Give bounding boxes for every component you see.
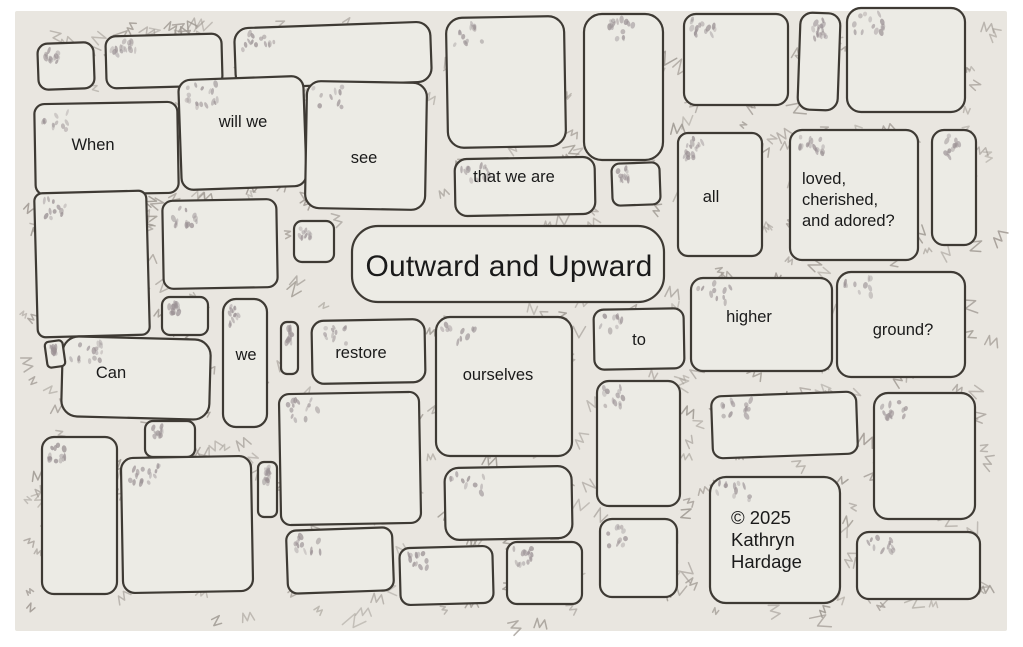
stone-outline bbox=[399, 546, 493, 605]
stipple-shading bbox=[811, 138, 814, 145]
stone bbox=[279, 392, 421, 525]
stone-outline bbox=[678, 133, 762, 256]
word-we: we bbox=[234, 346, 256, 364]
stone bbox=[162, 297, 208, 335]
stone bbox=[258, 462, 277, 517]
word-that-we-are: that we are bbox=[473, 168, 555, 186]
stone bbox=[436, 317, 572, 456]
stone-outline bbox=[597, 381, 680, 506]
stone-outline bbox=[61, 336, 211, 420]
stipple-shading bbox=[734, 487, 738, 495]
stipple-shading bbox=[460, 166, 463, 174]
stone bbox=[178, 76, 307, 190]
photo-of-drawing: When will we see that we are all loved, … bbox=[0, 0, 1023, 647]
stone-outline bbox=[178, 76, 307, 190]
stone-outline bbox=[436, 317, 572, 456]
stone-outline bbox=[507, 542, 582, 604]
stone bbox=[286, 527, 394, 594]
stone bbox=[37, 42, 95, 90]
stone bbox=[446, 16, 566, 148]
title-text: Outward and Upward bbox=[365, 250, 652, 283]
stone-outline bbox=[455, 157, 596, 216]
stipple-shading bbox=[45, 53, 48, 60]
stone bbox=[44, 340, 65, 368]
word-will-we: will we bbox=[218, 113, 268, 131]
stone-outline bbox=[121, 456, 253, 593]
stone bbox=[121, 456, 253, 593]
stone bbox=[507, 542, 582, 604]
stone bbox=[797, 12, 840, 110]
stone bbox=[61, 336, 211, 420]
stone bbox=[857, 532, 980, 599]
word-to: to bbox=[632, 331, 646, 349]
stone bbox=[145, 421, 195, 457]
stone-outline bbox=[857, 532, 980, 599]
stone-wall-drawing: When will we see that we are all loved, … bbox=[0, 0, 1023, 647]
word-ourselves: ourselves bbox=[463, 366, 534, 384]
stone bbox=[294, 221, 334, 262]
stone bbox=[600, 519, 677, 597]
word-higher: higher bbox=[726, 308, 772, 326]
stone bbox=[42, 437, 117, 594]
stone bbox=[162, 199, 278, 289]
stone bbox=[874, 393, 975, 519]
stone bbox=[932, 130, 976, 245]
word-loved: loved, bbox=[802, 170, 846, 188]
stone-outline bbox=[444, 466, 572, 540]
word-when: When bbox=[71, 136, 114, 154]
copyright-year: © 2025 bbox=[731, 507, 791, 528]
stone bbox=[847, 8, 965, 112]
stone-outline bbox=[847, 8, 965, 112]
stone bbox=[281, 322, 298, 374]
stone bbox=[711, 391, 858, 458]
word-restore: restore bbox=[335, 344, 386, 362]
stone-outline bbox=[600, 519, 677, 597]
stone-outline bbox=[162, 297, 208, 335]
stone bbox=[678, 133, 762, 256]
stipple-shading bbox=[293, 541, 297, 546]
word-ground: ground? bbox=[873, 321, 934, 339]
stone bbox=[455, 157, 596, 216]
stipple-shading bbox=[799, 135, 802, 140]
stone-outline bbox=[42, 437, 117, 594]
stone bbox=[597, 381, 680, 506]
stone bbox=[34, 191, 150, 338]
stone bbox=[305, 81, 427, 210]
stone-outline bbox=[279, 392, 421, 525]
stone-outline bbox=[37, 42, 95, 90]
stone bbox=[684, 14, 788, 105]
copyright-last-name: Hardage bbox=[731, 551, 802, 572]
stipple-shading bbox=[526, 559, 529, 564]
stone bbox=[444, 466, 572, 540]
copyright-first-name: Kathryn bbox=[731, 529, 795, 550]
word-can: Can bbox=[96, 364, 126, 382]
stone bbox=[584, 14, 663, 160]
stone-outline bbox=[305, 81, 427, 210]
stone-outline bbox=[162, 199, 278, 289]
word-and-adored: and adored? bbox=[802, 212, 895, 230]
word-see: see bbox=[351, 149, 378, 167]
word-all: all bbox=[703, 188, 720, 206]
word-cherished: cherished, bbox=[802, 191, 878, 209]
stone bbox=[399, 546, 493, 605]
stone bbox=[611, 162, 660, 206]
